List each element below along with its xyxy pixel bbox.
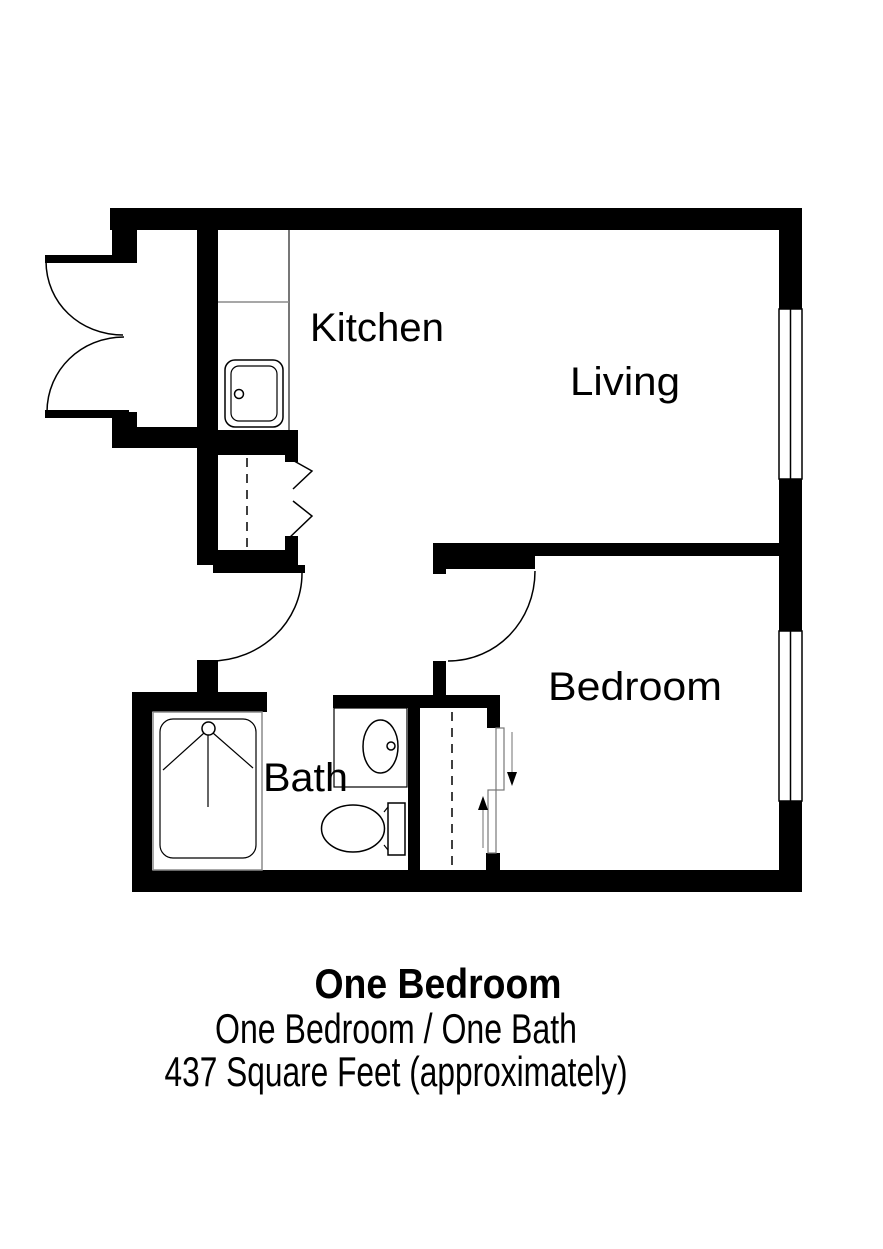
bath-door-arc — [210, 573, 302, 661]
slide-arrow-down-icon — [507, 772, 517, 786]
bedroom-door-arc — [448, 571, 535, 661]
floor-plan-page: Kitchen Living Bedroom Bath One Bedroom … — [0, 0, 883, 1249]
sliding-panel-inner — [488, 790, 496, 853]
room-label-living: Living — [570, 360, 680, 404]
entry-door-arc-top — [46, 261, 123, 335]
closet-jamb-bottom — [486, 853, 500, 872]
kitchen-pantry-wall — [197, 430, 298, 455]
kitchen-sink-outer — [225, 360, 283, 427]
kitchen-west-wall — [197, 228, 218, 565]
bath-north-wall — [132, 692, 267, 712]
entry-door-arc-bottom — [47, 337, 124, 412]
slide-arrow-up-icon — [478, 796, 488, 810]
entry-step-top — [112, 228, 137, 258]
caption-subtitle: One Bedroom / One Bath — [215, 1005, 577, 1052]
bedroom-door-header — [436, 556, 535, 569]
kitchen-faucet-icon — [235, 390, 244, 399]
room-label-bedroom: Bedroom — [548, 665, 722, 709]
bath-door-header — [213, 565, 305, 573]
toilet — [322, 803, 406, 855]
pantry-jamb-bottom — [285, 536, 298, 565]
wall-top — [110, 208, 802, 230]
pantry-bifold-chevron-bottom — [288, 501, 312, 539]
living-bedroom-wall — [433, 543, 802, 556]
wall-right-upper — [779, 208, 802, 309]
shower — [153, 712, 262, 870]
bath-west-wall — [132, 692, 152, 872]
pantry-bottom-wall — [197, 550, 293, 565]
bath-faucet-icon — [387, 742, 395, 750]
floor-plan-drawing: Kitchen Living Bedroom Bath One Bedroom … — [0, 0, 883, 1249]
pantry-bifold-closet — [247, 457, 312, 548]
closet-top-wall — [333, 695, 500, 708]
bedroom-window — [779, 631, 802, 801]
bedroom-door-step — [433, 556, 446, 574]
caption-area: 437 Square Feet (approximately) — [165, 1048, 628, 1095]
kitchen-sink — [225, 360, 283, 427]
room-label-bath: Bath — [263, 756, 348, 800]
caption-title: One Bedroom — [315, 960, 562, 1007]
bath-door-stub — [197, 660, 218, 692]
living-window — [779, 309, 802, 479]
shower-spray-right — [213, 733, 253, 768]
room-label-kitchen: Kitchen — [310, 306, 444, 350]
entry-alcove-wall-top — [45, 255, 137, 263]
wall-bottom — [132, 870, 802, 892]
sliding-panel-outer — [496, 728, 504, 790]
toilet-tank — [388, 803, 405, 855]
closet-jamb-top — [487, 708, 500, 728]
bedroom-sliding-closet — [452, 712, 517, 866]
bath-closet-wall — [408, 708, 420, 872]
toilet-bowl — [322, 805, 385, 852]
entry-double-door — [46, 261, 124, 412]
shower-spray-left — [163, 733, 204, 770]
